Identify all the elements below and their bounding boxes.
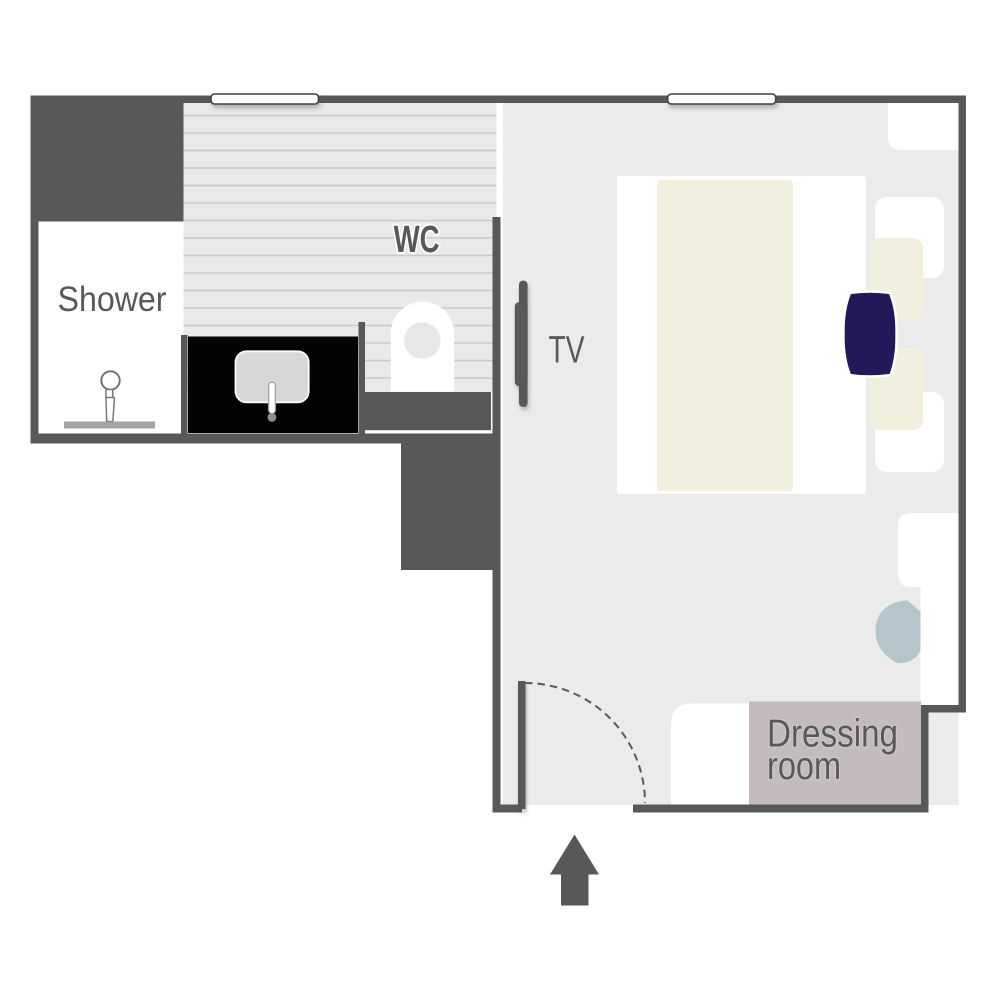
svg-text:Shower: Shower — [58, 280, 167, 319]
svg-text:room: room — [767, 745, 841, 788]
svg-text:WC: WC — [394, 219, 440, 261]
svg-text:TV: TV — [549, 330, 585, 372]
